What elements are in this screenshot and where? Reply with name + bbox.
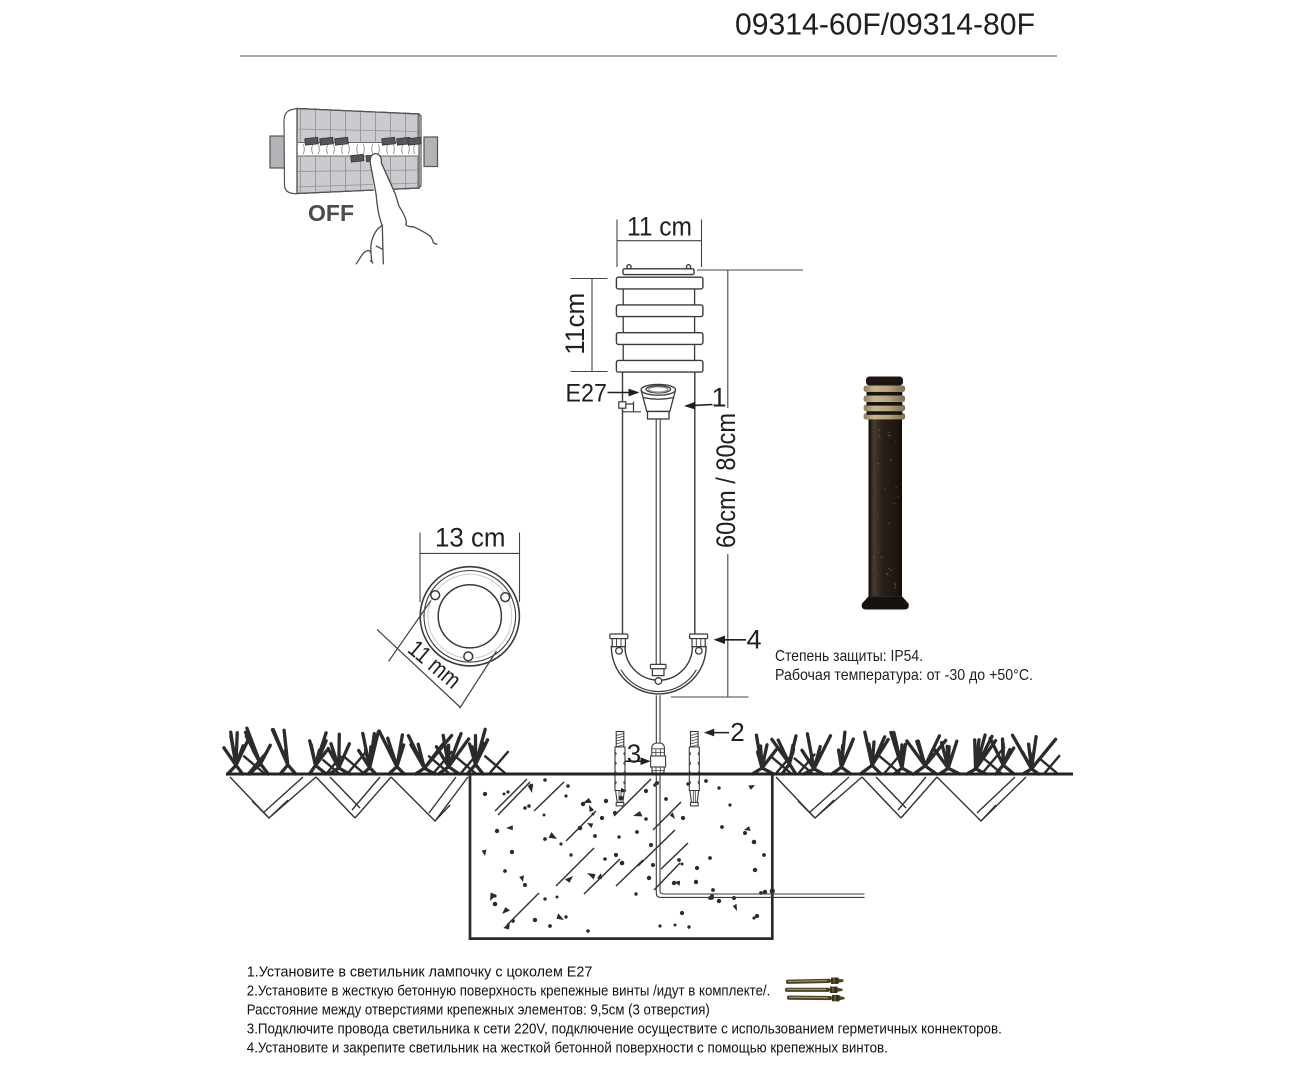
svg-text:11 cm: 11 cm	[627, 212, 692, 242]
svg-text:OFF: OFF	[308, 200, 354, 226]
svg-text:13 cm: 13 cm	[435, 523, 506, 553]
svg-text:09314-60F/09314-80F: 09314-60F/09314-80F	[735, 7, 1035, 42]
svg-text:3.Подключите провода светильни: 3.Подключите провода светильника к сети …	[247, 1021, 1002, 1038]
svg-text:60cm / 80cm: 60cm / 80cm	[711, 413, 741, 548]
svg-text:4: 4	[746, 625, 761, 655]
svg-text:2.Установите в жесткую бетонну: 2.Установите в жесткую бетонную поверхно…	[247, 983, 771, 1000]
svg-text:Степень защиты: IP54.: Степень защиты: IP54.	[775, 648, 923, 665]
svg-text:E27: E27	[566, 380, 608, 408]
svg-text:1: 1	[711, 383, 726, 413]
svg-text:11cm: 11cm	[560, 293, 590, 355]
svg-text:1.Установите в светильник ламп: 1.Установите в светильник лампочку с цок…	[247, 964, 593, 981]
svg-text:2: 2	[730, 717, 744, 747]
svg-text:4.Установите и закрепите свети: 4.Установите и закрепите светильник на ж…	[247, 1040, 888, 1057]
svg-text:Рабочая температура: от -30 до: Рабочая температура: от -30 до +50°C.	[775, 667, 1033, 684]
svg-text:3: 3	[627, 739, 641, 769]
svg-text:Расстояние между отверстиями к: Расстояние между отверстиями крепежных э…	[247, 1002, 710, 1019]
